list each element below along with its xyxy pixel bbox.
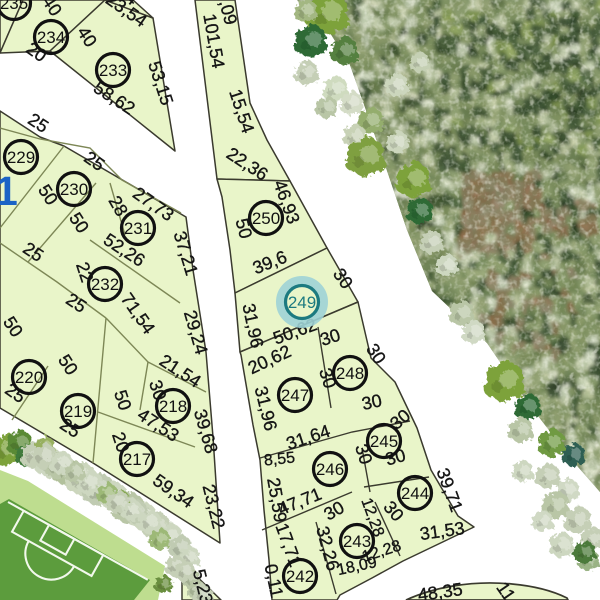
svg-text:250: 250 — [252, 209, 280, 228]
svg-text:1: 1 — [0, 168, 18, 214]
svg-text:249: 249 — [288, 293, 316, 312]
svg-text:230: 230 — [60, 180, 88, 199]
svg-text:232: 232 — [91, 275, 119, 294]
svg-text:235: 235 — [0, 0, 28, 13]
svg-text:247: 247 — [281, 386, 309, 405]
svg-text:234: 234 — [37, 28, 65, 47]
svg-text:220: 220 — [15, 368, 43, 387]
svg-text:233: 233 — [99, 61, 127, 80]
svg-text:217: 217 — [123, 450, 151, 469]
svg-text:218: 218 — [159, 397, 187, 416]
svg-text:243: 243 — [343, 532, 371, 551]
svg-text:245: 245 — [370, 432, 398, 451]
svg-text:244: 244 — [401, 484, 429, 503]
svg-text:219: 219 — [64, 402, 92, 421]
svg-text:8,55: 8,55 — [263, 449, 296, 469]
svg-text:248: 248 — [336, 364, 364, 383]
svg-text:242: 242 — [286, 567, 314, 586]
svg-text:30: 30 — [360, 390, 384, 414]
svg-text:246: 246 — [316, 460, 344, 479]
svg-text:229: 229 — [7, 148, 35, 167]
svg-text:231: 231 — [124, 219, 152, 238]
